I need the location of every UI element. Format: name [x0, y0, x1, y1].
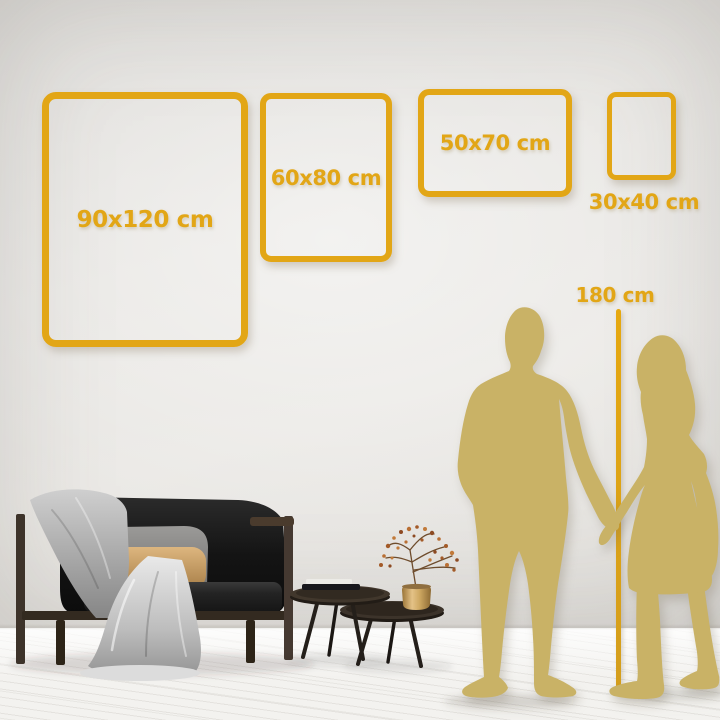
frame-90x120: 90x120 cm: [42, 92, 248, 347]
poster-size-guide-scene: 90x120 cm 60x80 cm 50x70 cm 30x40 cm 180…: [0, 0, 720, 720]
frame-60x80: 60x80 cm: [260, 93, 392, 262]
wood-floor: [0, 628, 720, 720]
frame-50x70: 50x70 cm: [418, 89, 572, 197]
size-label-90x120: 90x120 cm: [77, 207, 214, 233]
size-label-30x40: 30x40 cm: [586, 190, 702, 214]
height-measurement-label: 180 cm: [572, 283, 658, 307]
size-label-60x80: 60x80 cm: [271, 166, 381, 190]
height-measurement-line: [616, 309, 621, 690]
size-label-50x70: 50x70 cm: [440, 131, 550, 155]
wall-floor-junction: [0, 624, 720, 630]
frame-30x40: [607, 92, 676, 180]
